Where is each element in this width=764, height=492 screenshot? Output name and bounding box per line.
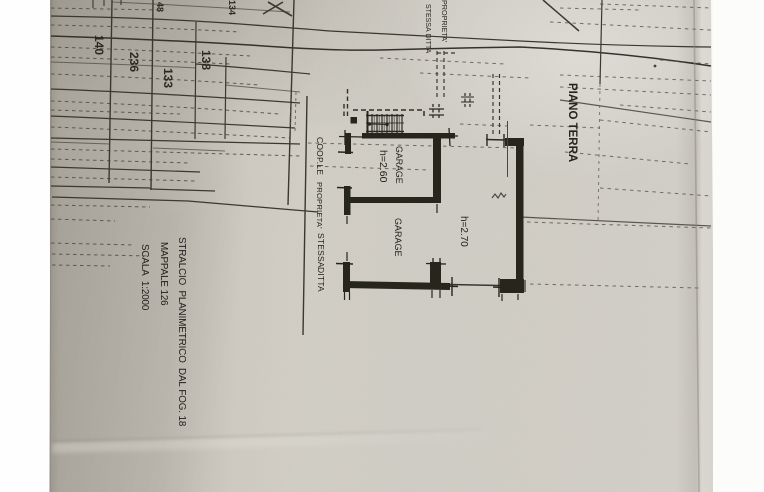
svg-text:STRALCIO PLANIMETRICO DAL FO: STRALCIO PLANIMETRICO DAL FOG. 18	[176, 237, 187, 427]
svg-text:STESSA: STESSA	[316, 233, 326, 268]
svg-text:MAPPALE 126: MAPPALE 126	[158, 242, 169, 306]
svg-text:138: 138	[199, 50, 213, 70]
svg-text:PROPRIETA': PROPRIETA'	[315, 182, 324, 229]
svg-text:COOP.LE: COOP.LE	[315, 137, 325, 175]
svg-text:STESSA DITTA: STESSA DITTA	[424, 4, 431, 54]
svg-text:DITTA: DITTA	[316, 267, 326, 292]
svg-text:SCALA 1:2000: SCALA 1:2000	[139, 244, 150, 311]
svg-text:GARAGE: GARAGE	[394, 146, 404, 184]
svg-text:134: 134	[227, 0, 237, 15]
svg-text:h=2.70: h=2.70	[458, 216, 469, 247]
svg-text:h=2.60: h=2.60	[377, 150, 389, 183]
svg-text:236: 236	[127, 52, 141, 72]
svg-text:PIANO TERRA: PIANO TERRA	[566, 83, 578, 162]
svg-text:140: 140	[92, 35, 106, 55]
svg-text:GARAGE: GARAGE	[393, 218, 403, 257]
svg-text:48: 48	[155, 2, 165, 12]
svg-text:PROPRIETA': PROPRIETA'	[440, 0, 449, 43]
svg-text:133: 133	[161, 68, 175, 88]
